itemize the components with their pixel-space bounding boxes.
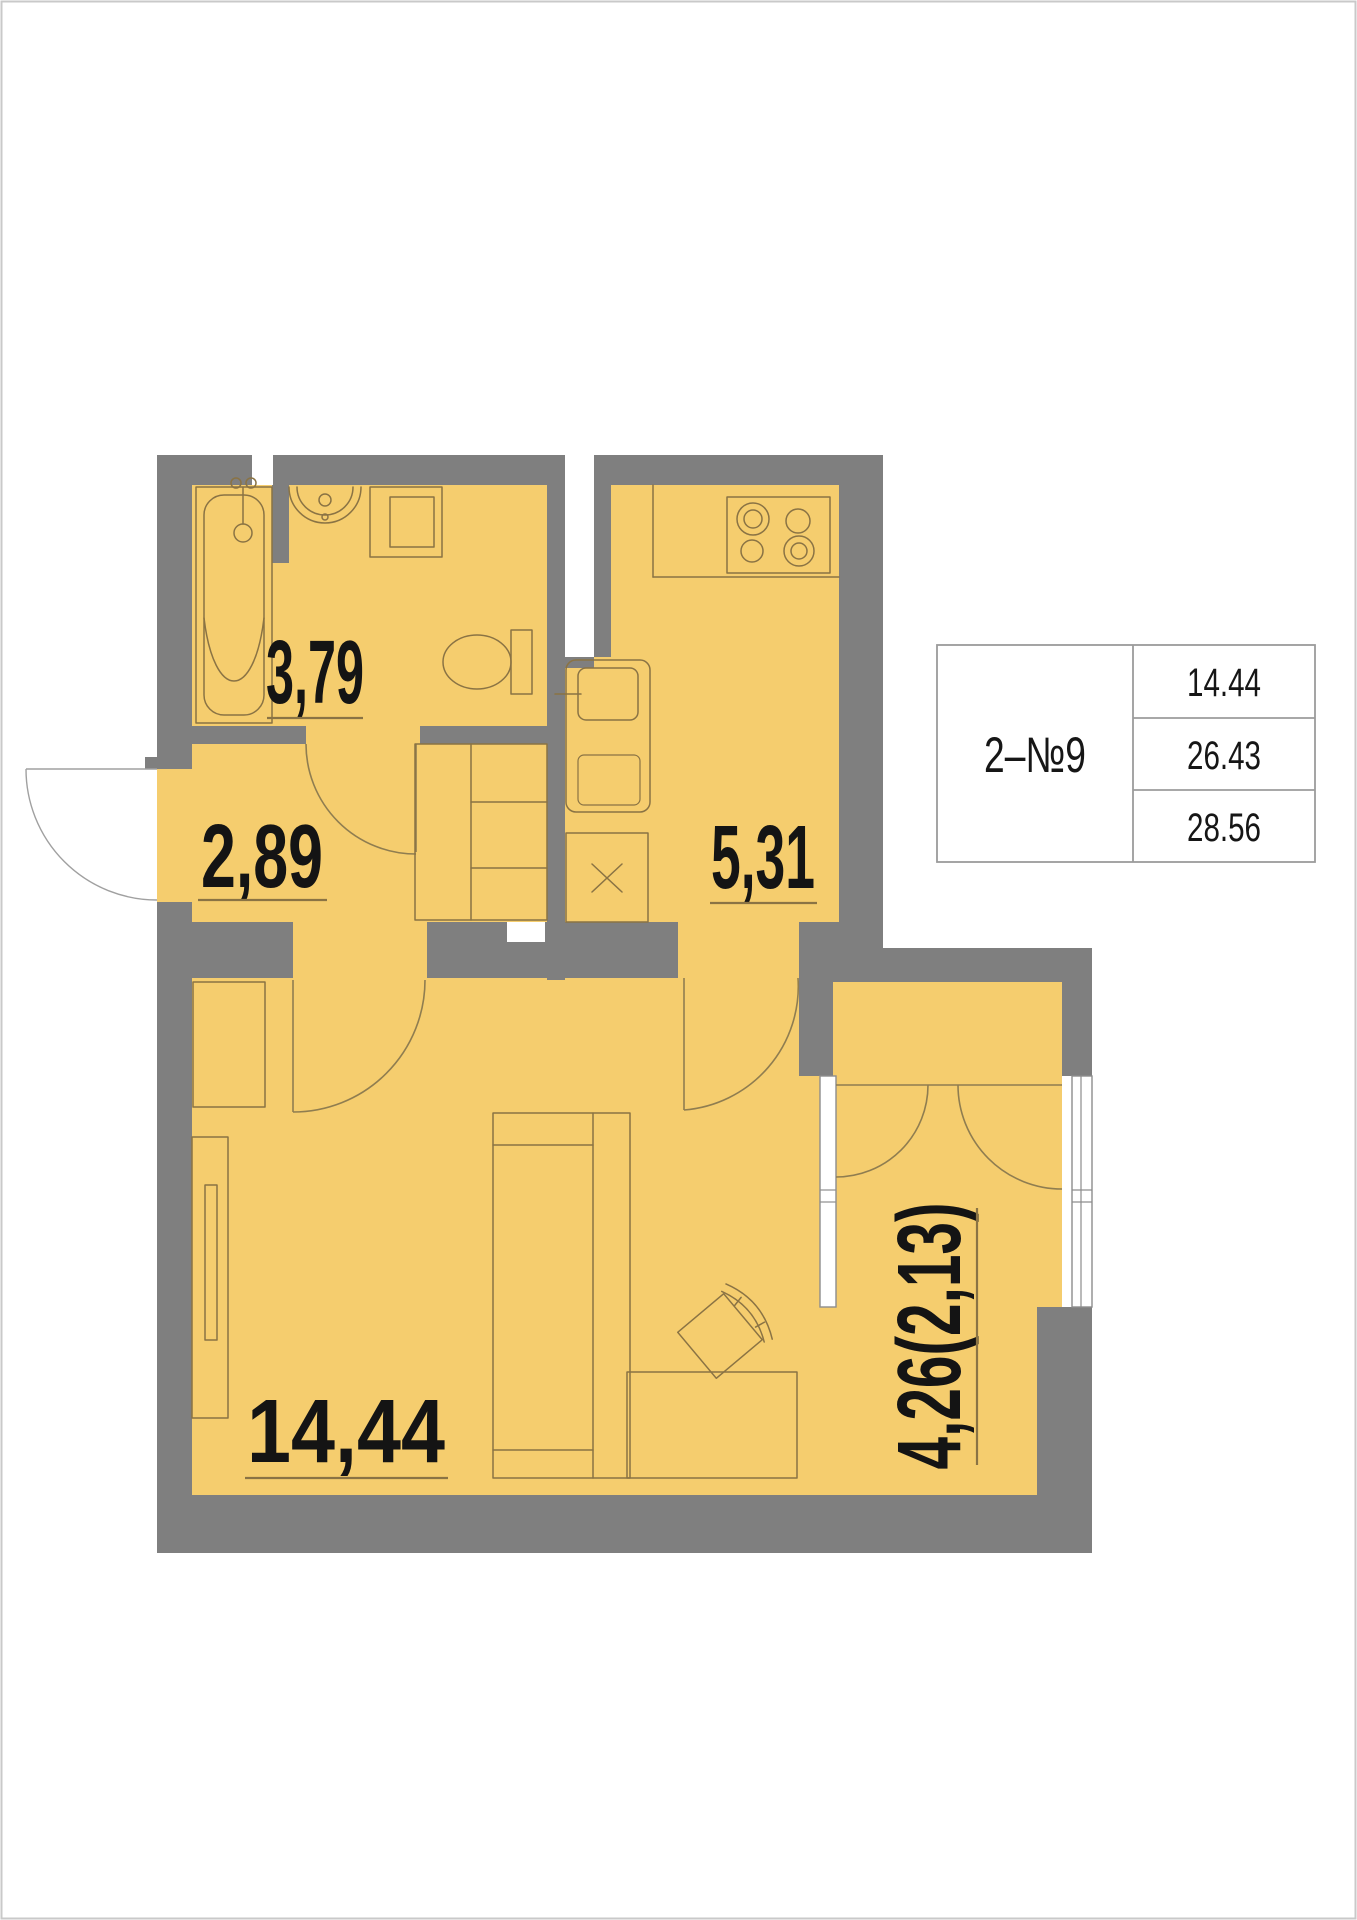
shaft-right-wall bbox=[594, 485, 611, 657]
info-table: 2–№9 14.44 26.43 28.56 bbox=[937, 645, 1315, 862]
balcony-label: 4,26(2,13) bbox=[880, 1203, 980, 1470]
balcony-right-wall-upper bbox=[1062, 982, 1092, 1076]
svg-text:2,89: 2,89 bbox=[201, 807, 323, 907]
total-area-value: 28.56 bbox=[1187, 806, 1261, 850]
hallway-label: 2,89 bbox=[198, 807, 327, 907]
bathroom-bottom-wall-right bbox=[420, 726, 547, 744]
top-wall-seg1 bbox=[157, 455, 252, 485]
bathroom-door-threshold bbox=[306, 726, 420, 744]
svg-text:3,79: 3,79 bbox=[266, 623, 364, 723]
living-top-wall-mid2 bbox=[545, 922, 678, 978]
kitchen-label: 5,31 bbox=[710, 808, 817, 908]
kitchen-passage-threshold bbox=[678, 922, 799, 978]
balcony-outer-window bbox=[1072, 1076, 1092, 1307]
svg-text:4,26(2,13): 4,26(2,13) bbox=[880, 1203, 980, 1470]
svg-text:14,44: 14,44 bbox=[247, 1382, 445, 1482]
floor-plan-drawing: 3,79 2,89 5,31 14,44 4,26(2,13) 2–№9 14.… bbox=[0, 0, 1357, 1920]
top-wall-seg2 bbox=[273, 455, 565, 485]
top-wall-seg3 bbox=[594, 455, 883, 485]
kitchen-balcony-corner-wall bbox=[799, 922, 883, 982]
bathroom-label: 3,79 bbox=[266, 623, 364, 723]
living-door-threshold bbox=[293, 922, 427, 978]
entrance-door bbox=[26, 769, 157, 900]
balcony-top-wall bbox=[883, 948, 1092, 982]
svg-text:5,31: 5,31 bbox=[711, 808, 815, 908]
bathroom-bottom-wall-left bbox=[192, 726, 306, 744]
left-wall-upper bbox=[157, 485, 192, 769]
bathroom-partition-stub bbox=[272, 485, 289, 563]
living-top-wall-mid1 bbox=[427, 922, 507, 978]
unit-number: 2–№9 bbox=[984, 727, 1086, 783]
entrance-jamb bbox=[145, 757, 157, 769]
living-top-wall-notch bbox=[507, 942, 545, 978]
living-top-wall-left bbox=[192, 922, 293, 978]
kitchen-right-wall bbox=[839, 485, 883, 922]
bottom-wall bbox=[157, 1495, 1092, 1553]
floor-plan-page: 3,79 2,89 5,31 14,44 4,26(2,13) 2–№9 14.… bbox=[0, 0, 1357, 1920]
entrance-threshold bbox=[157, 769, 192, 902]
left-wall-lower bbox=[157, 902, 192, 1495]
balcony-partition-window bbox=[820, 1076, 836, 1307]
apartment-area-value: 26.43 bbox=[1187, 734, 1261, 778]
living-label: 14,44 bbox=[245, 1382, 448, 1482]
living-area-value: 14.44 bbox=[1187, 661, 1261, 705]
balcony-right-wall-lower bbox=[1037, 1307, 1092, 1495]
living-right-wall-column bbox=[799, 982, 833, 1076]
bathroom-kitchen-wall bbox=[547, 485, 565, 980]
kitchen-floor-left bbox=[565, 657, 611, 922]
